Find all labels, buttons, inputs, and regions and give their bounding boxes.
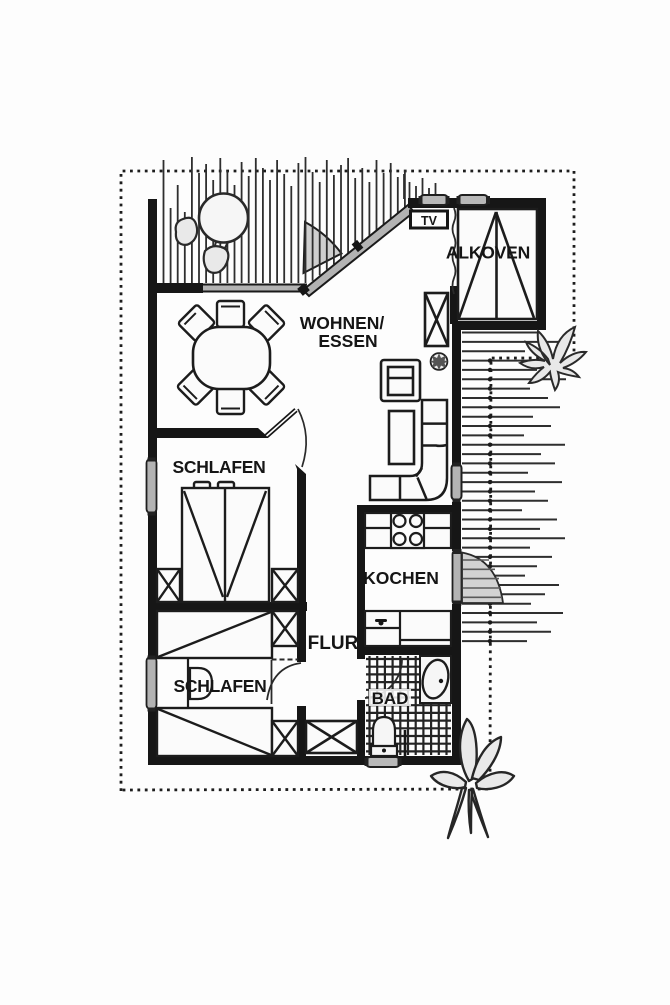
svg-text:WOHNEN/: WOHNEN/ <box>300 313 385 333</box>
svg-text:SCHLAFEN: SCHLAFEN <box>174 676 267 696</box>
svg-text:ESSEN: ESSEN <box>318 331 377 351</box>
svg-text:FLUR: FLUR <box>308 633 359 654</box>
svg-text:TV: TV <box>421 214 438 228</box>
svg-text:KOCHEN: KOCHEN <box>363 568 439 588</box>
svg-text:BAD: BAD <box>372 689 409 708</box>
svg-text:ALKOVEN: ALKOVEN <box>446 243 530 263</box>
svg-text:SCHLAFEN: SCHLAFEN <box>173 457 266 477</box>
